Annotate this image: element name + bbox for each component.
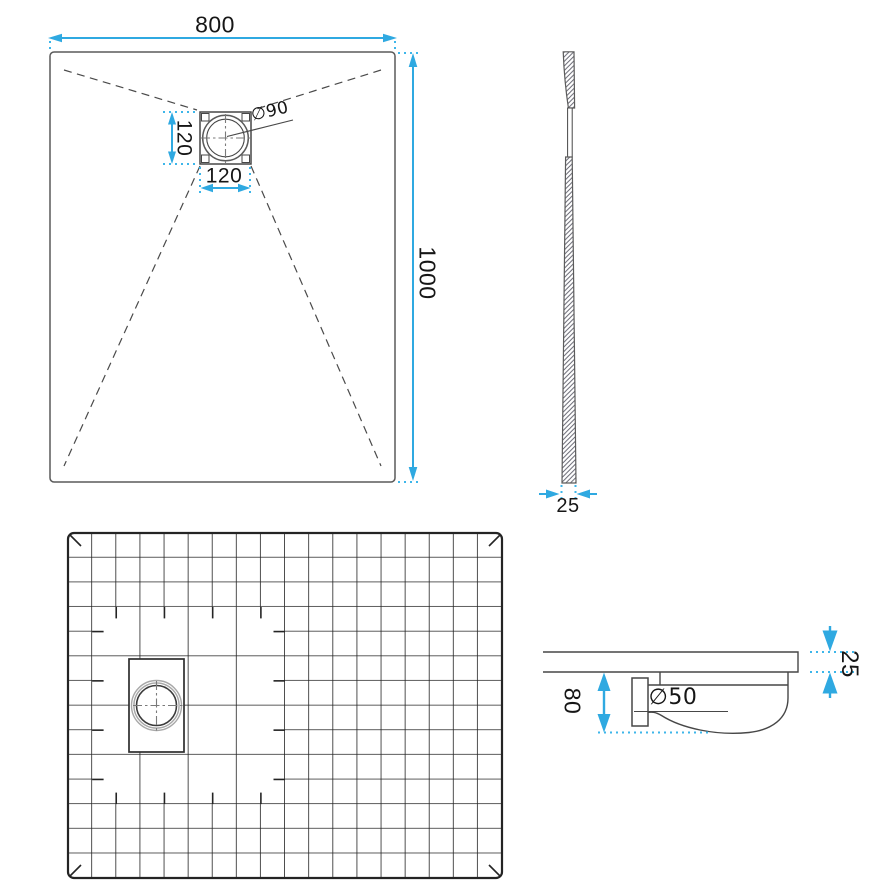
- side-profile-bottom: [562, 157, 576, 483]
- dim-25-detail-geometry: [810, 626, 856, 698]
- tray-section: [543, 652, 798, 672]
- dim-120-horizontal-geometry: [200, 167, 251, 195]
- drain-flange: [632, 678, 648, 726]
- dim-120-vertical-geometry: [163, 112, 199, 164]
- siphon-bowl: [648, 698, 788, 733]
- rib-grid-coarse: [92, 607, 285, 804]
- side-profile-top: [563, 52, 574, 108]
- technical-drawing-canvas: 800 1000 120 120 ∅90 25 80 ∅50 25: [0, 0, 888, 888]
- dim-1000-geometry: [398, 53, 418, 482]
- dim-25-side-geometry: [539, 485, 597, 501]
- dim-80-geometry: [598, 673, 713, 733]
- drawing-geometry: [0, 0, 888, 888]
- dim-800-geometry: [48, 34, 397, 53]
- bottom-view: [68, 533, 502, 878]
- top-view: [48, 34, 418, 482]
- detail-view: [543, 626, 856, 733]
- side-profile-middle: [568, 108, 573, 157]
- side-view: [539, 52, 597, 501]
- drain-square: [200, 112, 293, 164]
